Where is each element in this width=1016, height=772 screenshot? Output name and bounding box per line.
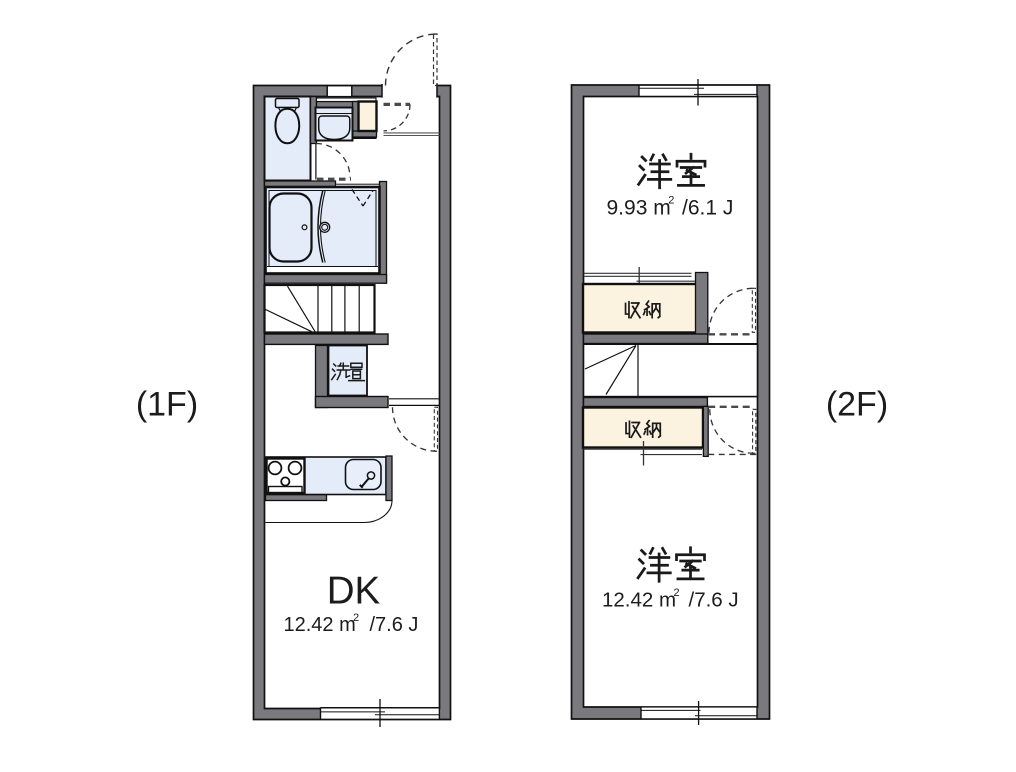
svg-text:2: 2 [353, 612, 359, 624]
svg-text:/6.1 J: /6.1 J [682, 197, 733, 220]
svg-text:DK: DK [327, 570, 381, 613]
svg-text:(1F): (1F) [136, 386, 198, 424]
svg-text:/7.6 J: /7.6 J [689, 589, 739, 612]
svg-text:9.93 m: 9.93 m [607, 197, 671, 220]
svg-text:/7.6 J: /7.6 J [370, 614, 419, 636]
svg-text:(2F): (2F) [826, 386, 888, 424]
svg-text:2: 2 [674, 587, 680, 599]
svg-text:2: 2 [668, 194, 674, 206]
svg-text:12.42 m: 12.42 m [284, 614, 356, 636]
svg-text:12.42 m: 12.42 m [602, 589, 676, 612]
